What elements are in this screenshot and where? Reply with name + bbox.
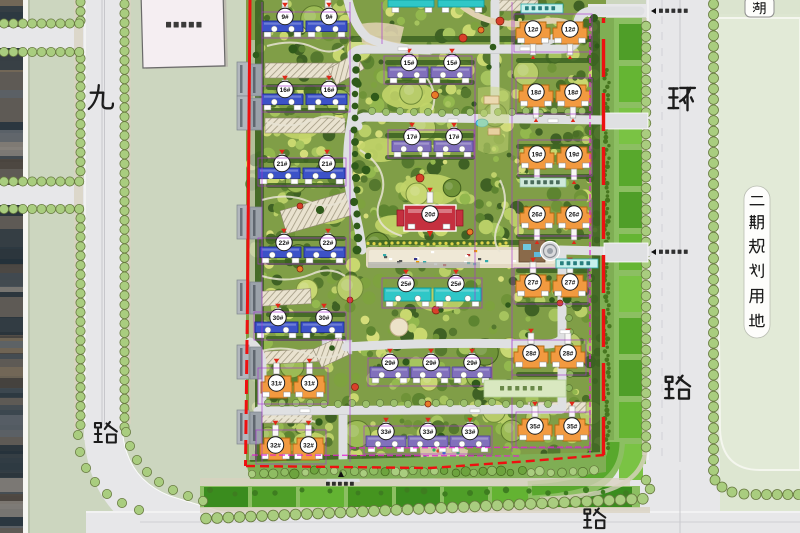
svg-text:12#: 12# (565, 26, 576, 33)
svg-text:21#: 21# (322, 161, 333, 168)
svg-text:17#: 17# (449, 134, 460, 141)
svg-text:16#: 16# (324, 87, 335, 94)
svg-text:29#: 29# (385, 360, 396, 367)
svg-text:26#: 26# (569, 211, 580, 218)
svg-text:35#: 35# (567, 423, 578, 430)
svg-text:35#: 35# (530, 423, 541, 430)
svg-text:31#: 31# (271, 380, 282, 387)
svg-text:18#: 18# (568, 89, 579, 96)
svg-text:27#: 27# (565, 279, 576, 286)
svg-text:27#: 27# (528, 279, 539, 286)
svg-text:26#: 26# (532, 211, 543, 218)
svg-text:19#: 19# (569, 151, 580, 158)
svg-text:31#: 31# (304, 380, 315, 387)
svg-text:25#: 25# (401, 281, 412, 288)
svg-text:28#: 28# (526, 350, 537, 357)
svg-text:18#: 18# (531, 89, 542, 96)
svg-text:29#: 29# (467, 360, 478, 367)
svg-text:22#: 22# (323, 240, 334, 247)
svg-text:19#: 19# (532, 151, 543, 158)
svg-text:20#: 20# (425, 211, 436, 218)
svg-text:17#: 17# (407, 134, 418, 141)
svg-text:33#: 33# (423, 429, 434, 436)
svg-text:32#: 32# (270, 442, 281, 449)
svg-text:9#: 9# (281, 14, 289, 21)
svg-text:12#: 12# (528, 26, 539, 33)
svg-text:21#: 21# (277, 161, 288, 168)
svg-text:9#: 9# (325, 14, 333, 21)
svg-text:30#: 30# (273, 315, 284, 322)
svg-text:33#: 33# (381, 429, 392, 436)
svg-text:29#: 29# (426, 360, 437, 367)
svg-text:32#: 32# (303, 442, 314, 449)
svg-text:15#: 15# (404, 60, 415, 67)
svg-text:22#: 22# (279, 240, 290, 247)
svg-text:15#: 15# (447, 60, 458, 67)
svg-text:28#: 28# (563, 350, 574, 357)
svg-text:33#: 33# (465, 429, 476, 436)
svg-text:16#: 16# (280, 87, 291, 94)
svg-text:25#: 25# (451, 281, 462, 288)
svg-text:30#: 30# (319, 315, 330, 322)
